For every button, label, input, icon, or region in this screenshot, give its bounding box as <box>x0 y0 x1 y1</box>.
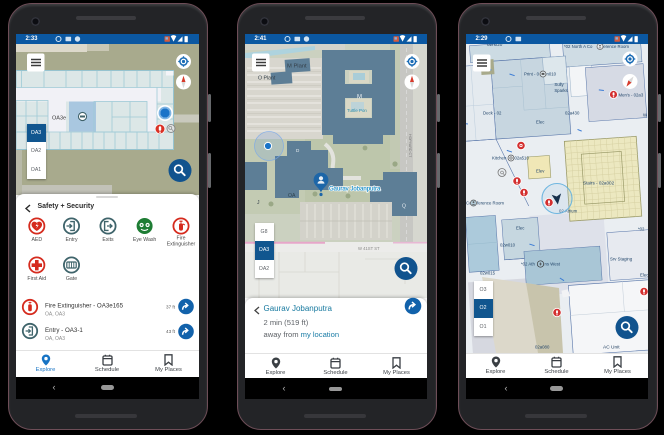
svg-text:Extinguisher: Extinguisher <box>166 241 195 247</box>
svg-text:AC Unit: AC Unit <box>603 345 620 351</box>
svg-text:n010: n010 <box>546 72 556 77</box>
svg-text:Kitchen: Kitchen <box>492 156 507 161</box>
svg-text:Print - 0: Print - 0 <box>524 72 540 77</box>
svg-text:AED: AED <box>31 237 42 243</box>
svg-text:Deck - 02: Deck - 02 <box>483 111 502 116</box>
svg-text:Stairs - 02a002: Stairs - 02a002 <box>583 181 615 186</box>
svg-text:02w010: 02w010 <box>500 243 516 248</box>
svg-text:ns West: ns West <box>544 262 560 267</box>
svg-text:*02 Ath: *02 Ath <box>521 262 535 267</box>
svg-text:ference Room: ference Room <box>477 201 504 206</box>
svg-text:OA, OA3: OA, OA3 <box>45 336 65 342</box>
svg-text:HOPYARD CT: HOPYARD CT <box>408 134 412 158</box>
svg-text:Sparks: Sparks <box>554 88 567 93</box>
svg-text:Sully: Sully <box>554 82 564 87</box>
svg-text:*02 North A Co: *02 North A Co <box>564 44 593 49</box>
svg-text:*02: *02 <box>638 227 645 232</box>
svg-text:02a430: 02a430 <box>565 111 580 116</box>
svg-text:M: M <box>357 95 362 101</box>
svg-text:37 ft: 37 ft <box>166 304 176 309</box>
svg-text:02a080: 02a080 <box>535 345 550 350</box>
svg-text:02n020: 02n020 <box>487 44 503 47</box>
svg-text:First Aid: First Aid <box>27 276 46 282</box>
svg-text:Q: Q <box>402 204 406 210</box>
svg-text:43 ft: 43 ft <box>166 329 176 334</box>
svg-text:Elec: Elec <box>640 273 648 278</box>
svg-text:M Plant: M Plant <box>287 64 307 70</box>
svg-text:Exits: Exits <box>102 237 114 243</box>
svg-text:Entry: Entry <box>65 237 78 243</box>
svg-text:Gaurav Jobanputra: Gaurav Jobanputra <box>329 187 381 193</box>
svg-text:Men's - 02a3: Men's - 02a3 <box>618 93 643 98</box>
svg-text:O Plant: O Plant <box>258 76 276 82</box>
svg-text:02a510: 02a510 <box>514 156 529 161</box>
svg-text:Tuttle Pon: Tuttle Pon <box>347 108 367 113</box>
svg-text:Eye Wash: Eye Wash <box>132 237 156 243</box>
svg-text:OA3e: OA3e <box>52 116 66 122</box>
svg-text:ference Room: ference Room <box>602 44 629 49</box>
svg-text:Elec: Elec <box>536 120 545 125</box>
svg-text:Elec: Elec <box>516 226 525 231</box>
svg-text:Srv Staging: Srv Staging <box>610 257 633 262</box>
svg-text:Elev: Elev <box>536 169 545 174</box>
svg-text:Entry - OA3-1: Entry - OA3-1 <box>45 327 83 334</box>
svg-text:W 41ST ST: W 41ST ST <box>358 246 380 251</box>
svg-text:Fire Extinguisher - OA3e165: Fire Extinguisher - OA3e165 <box>45 302 124 309</box>
svg-text:OA: OA <box>288 193 296 199</box>
svg-text:02w015: 02w015 <box>480 271 496 276</box>
svg-text:Gate: Gate <box>65 276 76 282</box>
